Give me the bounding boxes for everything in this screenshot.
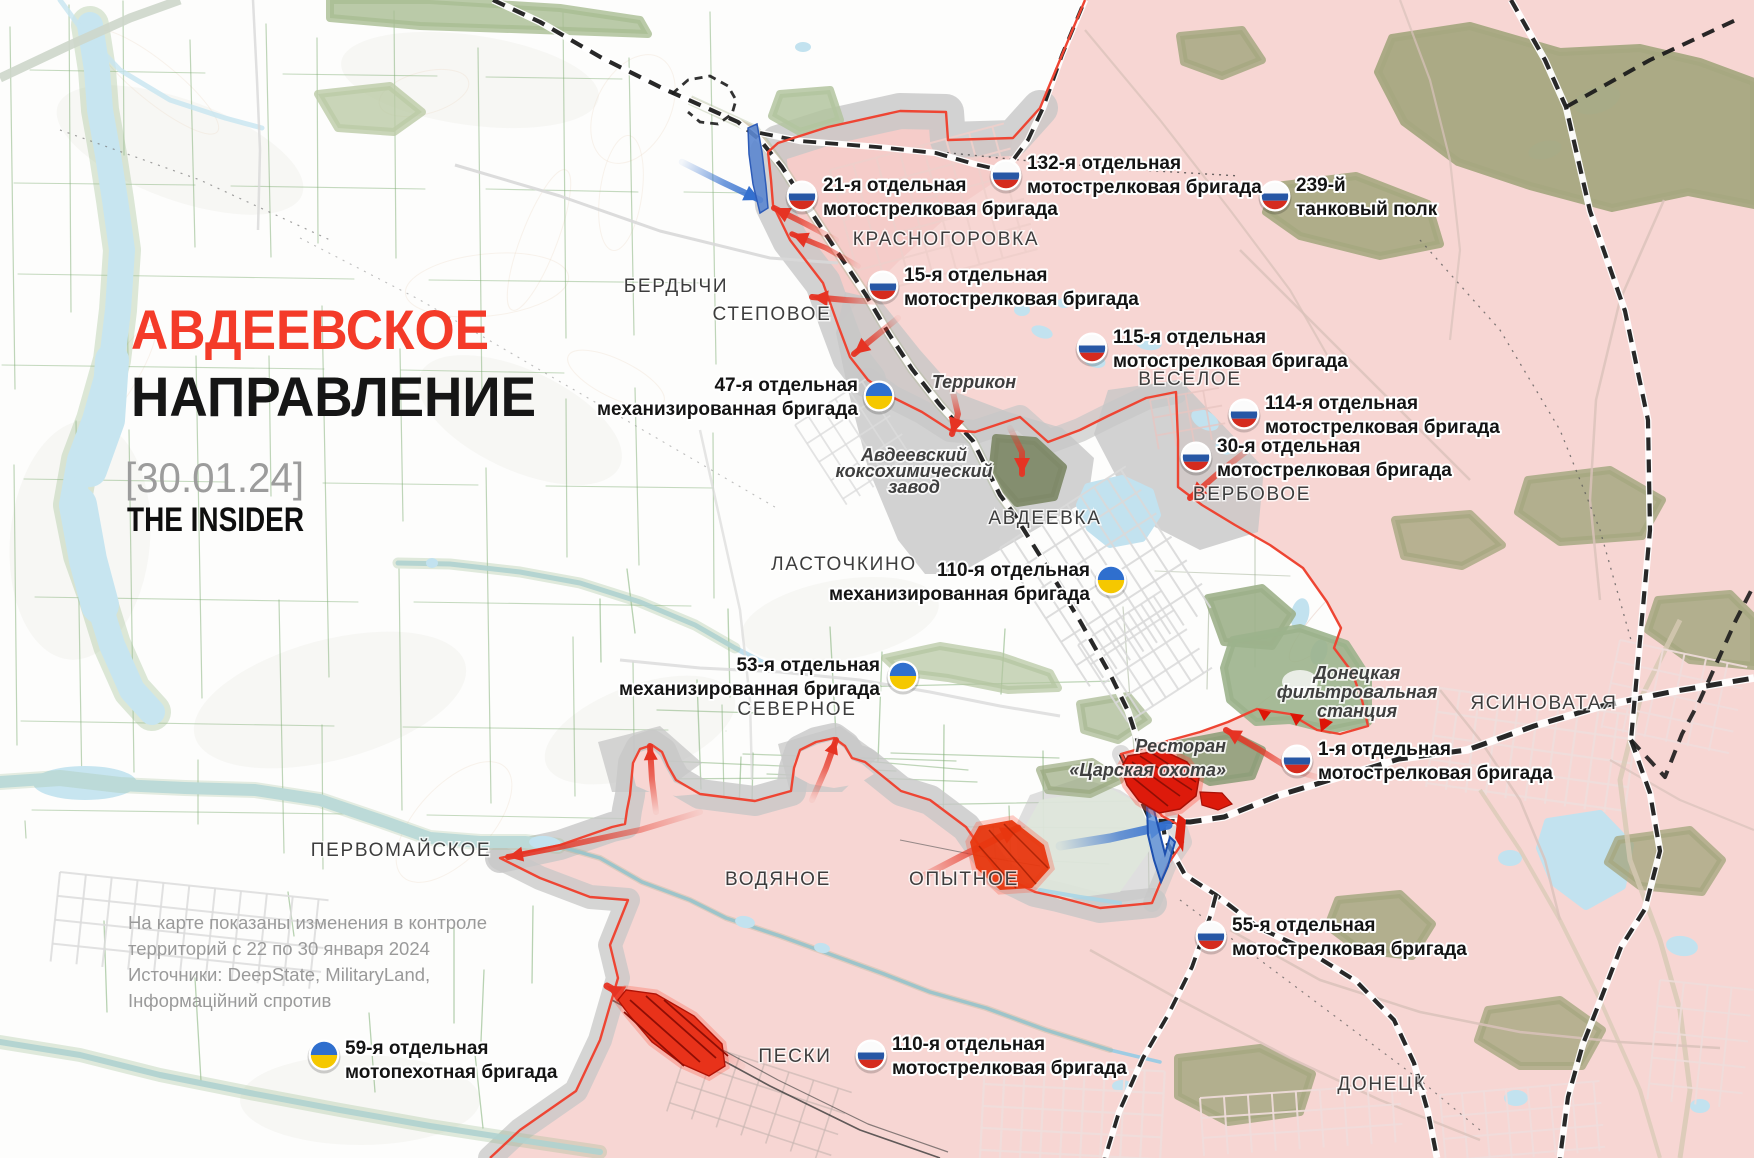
svg-text:ДОНЕЦК: ДОНЕЦК (1337, 1074, 1426, 1095)
svg-text:ЛАСТОЧКИНО: ЛАСТОЧКИНО (771, 554, 917, 575)
svg-text:мотострелковая бригада: мотострелковая бригада (892, 1058, 1127, 1079)
svg-text:ВОДЯНОЕ: ВОДЯНОЕ (725, 869, 831, 890)
svg-text:механизированная бригада: механизированная бригада (597, 399, 858, 420)
svg-text:47-я отдельная: 47-я отдельная (714, 375, 858, 396)
svg-text:1-я отдельная: 1-я отдельная (1318, 739, 1451, 760)
svg-text:На карте показаны изменения в: На карте показаны изменения в контроле (128, 912, 487, 933)
svg-text:АВДЕЕВКА: АВДЕЕВКА (988, 508, 1101, 529)
svg-text:АВДЕЕВСКОЕ: АВДЕЕВСКОЕ (131, 298, 489, 361)
svg-text:завод: завод (888, 477, 940, 497)
svg-text:КРАСНОГОРОВКА: КРАСНОГОРОВКА (853, 229, 1040, 250)
svg-text:Донецкая: Донецкая (1312, 663, 1401, 683)
svg-text:ВЕСЕЛОЕ: ВЕСЕЛОЕ (1138, 369, 1242, 390)
svg-text:55-я отдельная: 55-я отдельная (1232, 915, 1376, 936)
svg-text:фильтровальная: фильтровальная (1277, 682, 1438, 702)
svg-text:мотострелковая бригада: мотострелковая бригада (1027, 177, 1262, 198)
svg-text:Террикон: Террикон (932, 372, 1016, 392)
svg-text:21-я отдельная: 21-я отдельная (823, 175, 967, 196)
svg-text:мотострелковая бригада: мотострелковая бригада (1232, 939, 1467, 960)
svg-text:15-я отдельная: 15-я отдельная (904, 265, 1048, 286)
svg-text:110-я отдельная: 110-я отдельная (937, 560, 1090, 581)
svg-text:мотострелковая бригада: мотострелковая бригада (1217, 460, 1452, 481)
svg-text:мотострелковая бригада: мотострелковая бригада (823, 199, 1058, 220)
svg-text:БЕРДЫЧИ: БЕРДЫЧИ (624, 276, 728, 297)
svg-text:132-я отдельная: 132-я отдельная (1027, 153, 1181, 174)
svg-text:НАПРАВЛЕНИЕ: НАПРАВЛЕНИЕ (131, 365, 536, 428)
svg-text:53-я отдельная: 53-я отдельная (736, 655, 880, 676)
svg-text:THE INSIDER: THE INSIDER (127, 501, 304, 539)
svg-text:ЯСИНОВАТАЯ: ЯСИНОВАТАЯ (1470, 693, 1617, 714)
svg-text:Источники: DeepState, Military: Источники: DeepState, MilitaryLand, (128, 964, 430, 985)
svg-text:114-я отдельная: 114-я отдельная (1265, 393, 1418, 414)
svg-text:станция: станция (1317, 701, 1398, 721)
svg-text:мотострелковая бригада: мотострелковая бригада (904, 289, 1139, 310)
svg-text:механизированная бригада: механизированная бригада (619, 679, 880, 700)
svg-text:«Царская охота»: «Царская охота» (1069, 760, 1226, 780)
svg-text:ПЕСКИ: ПЕСКИ (758, 1046, 831, 1067)
svg-text:59-я отдельная: 59-я отдельная (345, 1038, 489, 1059)
svg-text:СЕВЕРНОЕ: СЕВЕРНОЕ (737, 699, 856, 720)
svg-text:Інформаційний спротив: Інформаційний спротив (128, 990, 331, 1011)
svg-text:[30.01.24]: [30.01.24] (125, 454, 304, 501)
svg-text:СТЕПОВОЕ: СТЕПОВОЕ (713, 304, 832, 325)
svg-text:30-я отдельная: 30-я отдельная (1217, 436, 1361, 457)
svg-text:танковый полк: танковый полк (1296, 199, 1438, 220)
svg-text:239-й: 239-й (1296, 175, 1346, 196)
svg-text:ОПЫТНОЕ: ОПЫТНОЕ (909, 869, 1019, 890)
svg-text:ПЕРВОМАЙСКОЕ: ПЕРВОМАЙСКОЕ (311, 839, 491, 861)
svg-text:мотопехотная бригада: мотопехотная бригада (345, 1062, 558, 1083)
svg-text:Ресторан: Ресторан (1135, 736, 1226, 756)
svg-text:мотострелковая бригада: мотострелковая бригада (1265, 417, 1500, 438)
svg-text:механизированная бригада: механизированная бригада (829, 584, 1090, 605)
svg-text:115-я отдельная: 115-я отдельная (1113, 327, 1266, 348)
svg-text:110-я отдельная: 110-я отдельная (892, 1034, 1045, 1055)
svg-text:территорий с 22 по 30 января 2: территорий с 22 по 30 января 2024 (128, 938, 430, 959)
svg-text:мотострелковая бригада: мотострелковая бригада (1318, 763, 1553, 784)
svg-text:ВЕРБОВОЕ: ВЕРБОВОЕ (1193, 484, 1311, 505)
